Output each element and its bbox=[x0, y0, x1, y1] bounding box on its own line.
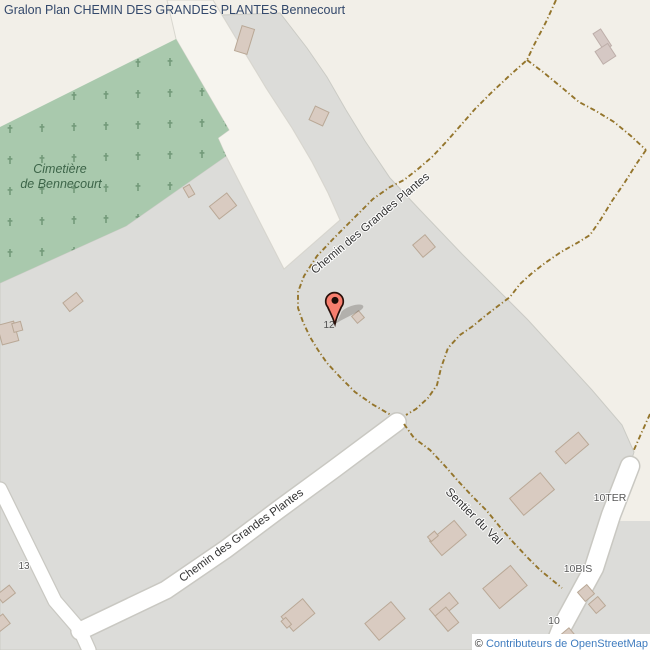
svg-text:© Contributeurs de OpenStreetM: © Contributeurs de OpenStreetMap bbox=[475, 638, 648, 650]
svg-text:Gralon Plan CHEMIN DES GRANDES: Gralon Plan CHEMIN DES GRANDES PLANTES B… bbox=[4, 3, 346, 17]
svg-text:10BIS: 10BIS bbox=[564, 563, 593, 575]
svg-text:10: 10 bbox=[548, 615, 560, 627]
svg-text:10TER: 10TER bbox=[594, 492, 627, 504]
svg-text:12: 12 bbox=[323, 320, 335, 331]
svg-text:Cimetière: Cimetière bbox=[33, 162, 87, 176]
svg-text:13: 13 bbox=[18, 561, 30, 572]
svg-text:de Bennecourt: de Bennecourt bbox=[20, 177, 102, 191]
